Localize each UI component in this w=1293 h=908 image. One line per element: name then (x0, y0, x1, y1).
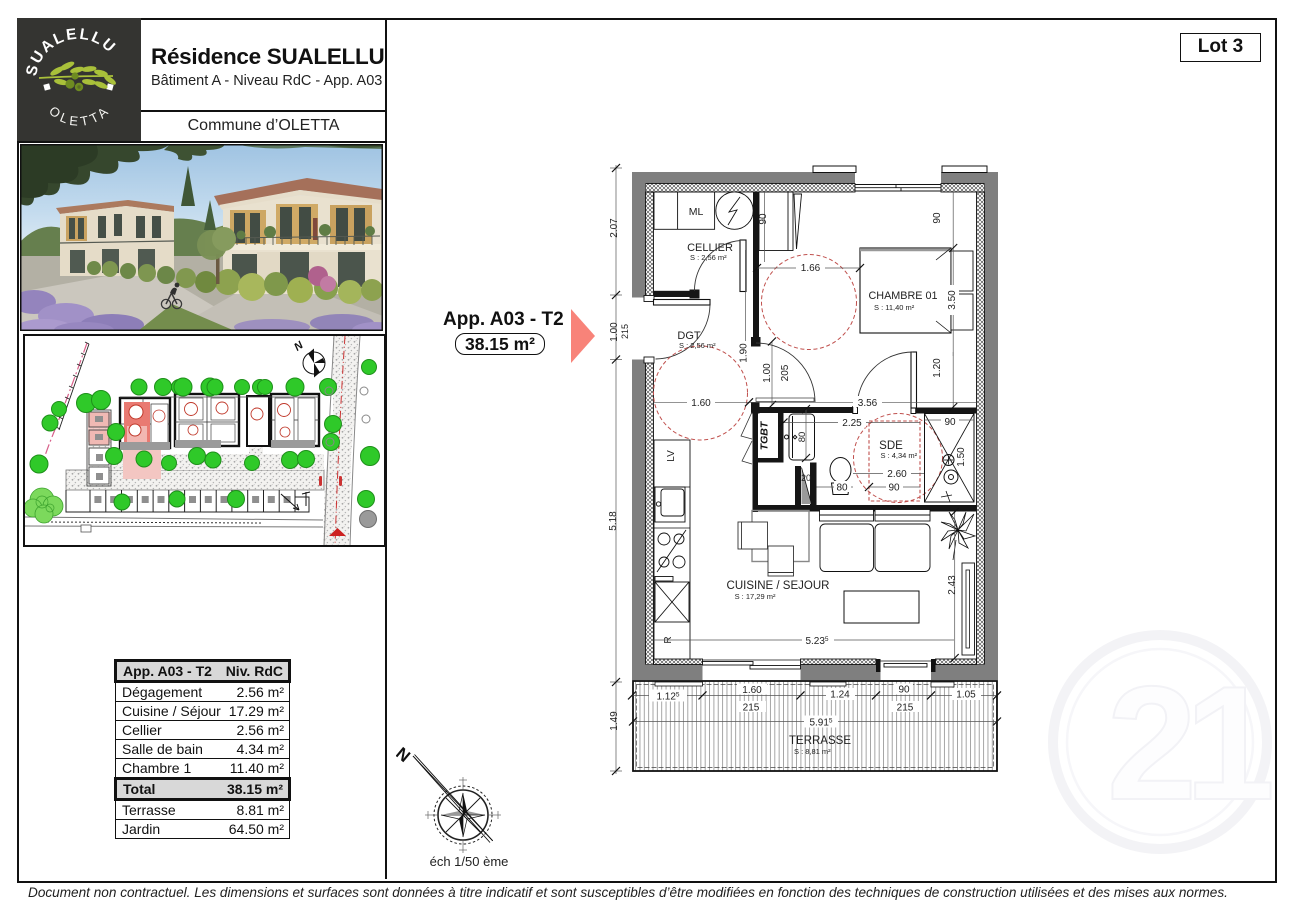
svg-text:S : 11,40 m²: S : 11,40 m² (874, 303, 915, 312)
svg-text:205: 205 (780, 364, 791, 381)
svg-text:1.66: 1.66 (801, 263, 821, 274)
svg-text:1.24: 1.24 (830, 690, 850, 701)
svg-text:LV: LV (666, 450, 677, 462)
svg-text:3.56: 3.56 (858, 398, 878, 409)
svg-text:N: N (396, 745, 414, 766)
svg-text:1.00: 1.00 (762, 363, 773, 383)
svg-text:1.05: 1.05 (956, 690, 976, 701)
svg-text:1.60: 1.60 (691, 398, 711, 409)
svg-text:90: 90 (932, 212, 943, 224)
svg-text:2.60: 2.60 (887, 469, 907, 480)
svg-text:215: 215 (897, 703, 914, 714)
svg-text:2.43: 2.43 (947, 575, 958, 595)
svg-text:1.49: 1.49 (609, 711, 620, 731)
svg-text:80: 80 (836, 483, 848, 494)
svg-text:215: 215 (743, 703, 760, 714)
svg-text:TERRASSE: TERRASSE (789, 735, 851, 747)
svg-text:S : 2,56 m²: S : 2,56 m² (690, 253, 727, 262)
svg-text:S : 2,56 m²: S : 2,56 m² (679, 341, 716, 350)
svg-text:S : 8,81 m²: S : 8,81 m² (794, 747, 831, 756)
svg-text:1.00: 1.00 (609, 322, 620, 342)
svg-text:S : 17,29 m²: S : 17,29 m² (735, 592, 776, 601)
svg-text:90: 90 (888, 483, 900, 494)
svg-text:20: 20 (801, 473, 811, 483)
svg-text:215: 215 (620, 324, 630, 339)
svg-text:S : 4,34 m²: S : 4,34 m² (881, 451, 918, 460)
svg-text:ML: ML (689, 206, 704, 218)
svg-text:90: 90 (758, 213, 769, 225)
svg-text:CHAMBRE 01: CHAMBRE 01 (869, 290, 938, 302)
svg-text:5.18: 5.18 (608, 511, 619, 531)
svg-text:3.50: 3.50 (947, 290, 958, 310)
svg-text:1.20: 1.20 (932, 358, 943, 378)
svg-text:90: 90 (898, 685, 910, 696)
svg-text:1.90: 1.90 (739, 343, 750, 363)
svg-text:1.50: 1.50 (956, 447, 967, 467)
svg-text:CUISINE / SEJOUR: CUISINE / SEJOUR (727, 580, 830, 592)
svg-text:80: 80 (797, 432, 808, 443)
svg-text:1.60: 1.60 (742, 685, 762, 696)
svg-text:2.07: 2.07 (609, 218, 620, 238)
svg-text:2.25: 2.25 (842, 418, 862, 429)
svg-text:TGBT: TGBT (759, 420, 771, 450)
svg-text:90: 90 (944, 417, 956, 428)
